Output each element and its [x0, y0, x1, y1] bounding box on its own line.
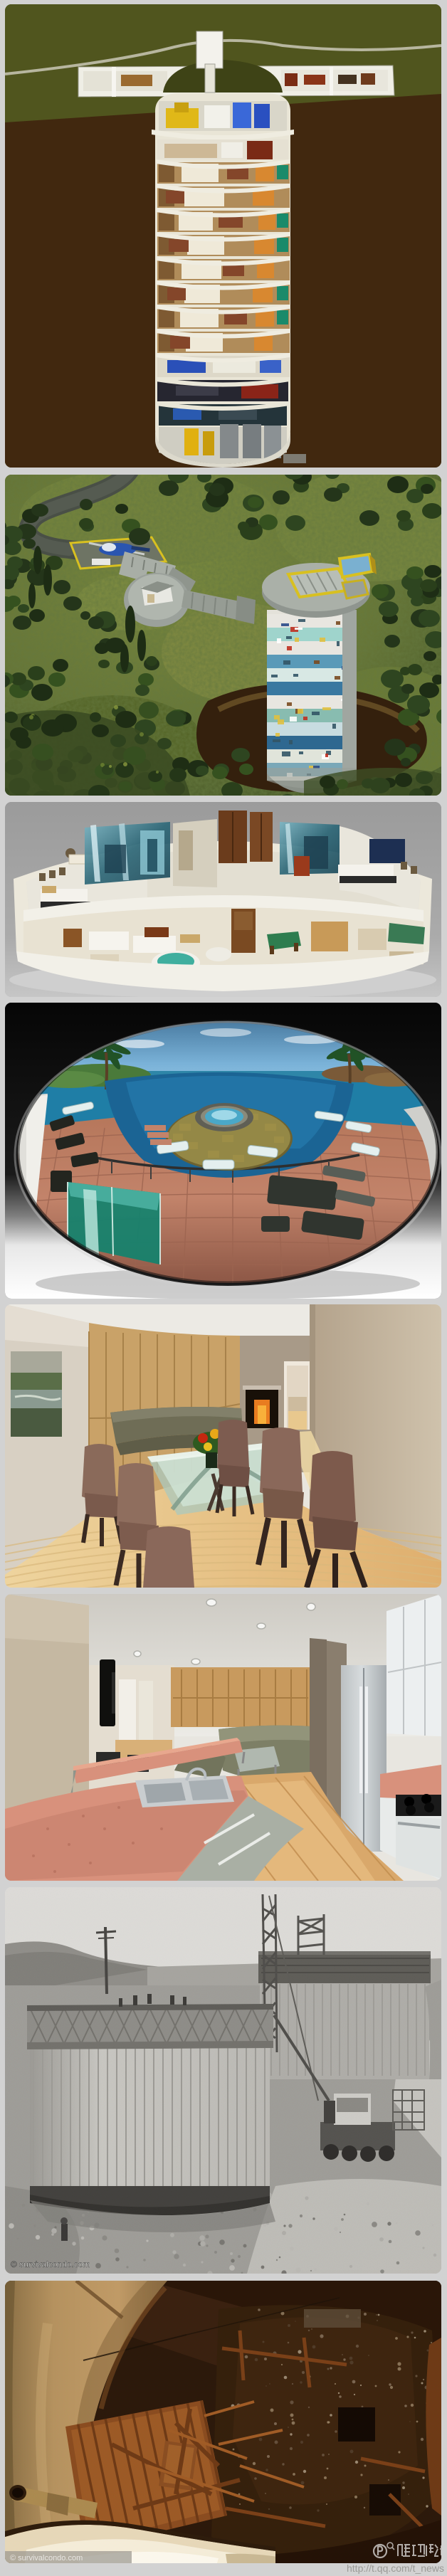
svg-text:© survivalcondo.com: © survivalcondo.com [10, 2554, 83, 2562]
svg-text:© survivalcondo.com: © survivalcondo.com [11, 2259, 90, 2269]
